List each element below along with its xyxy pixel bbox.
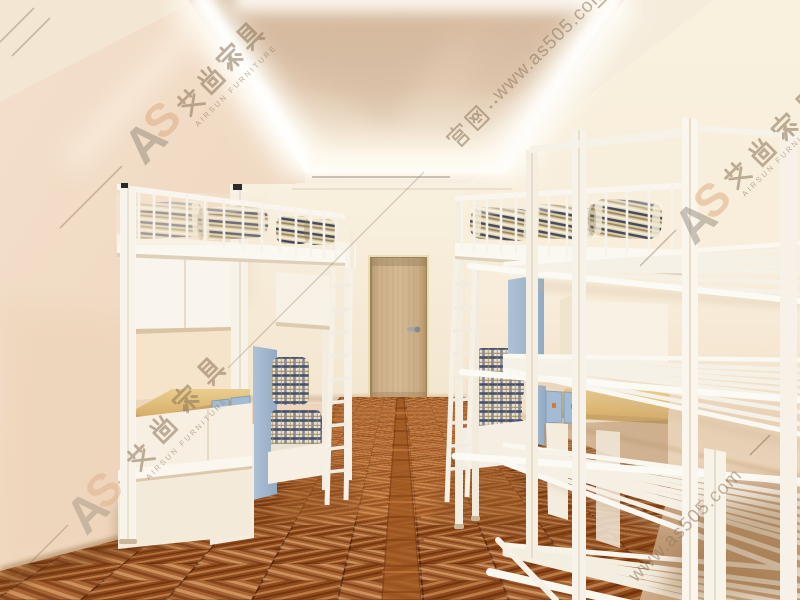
svg-text:www.as505.com: www.as505.com	[624, 465, 747, 588]
svg-text:www.as505.com: www.as505.com	[488, 0, 611, 105]
